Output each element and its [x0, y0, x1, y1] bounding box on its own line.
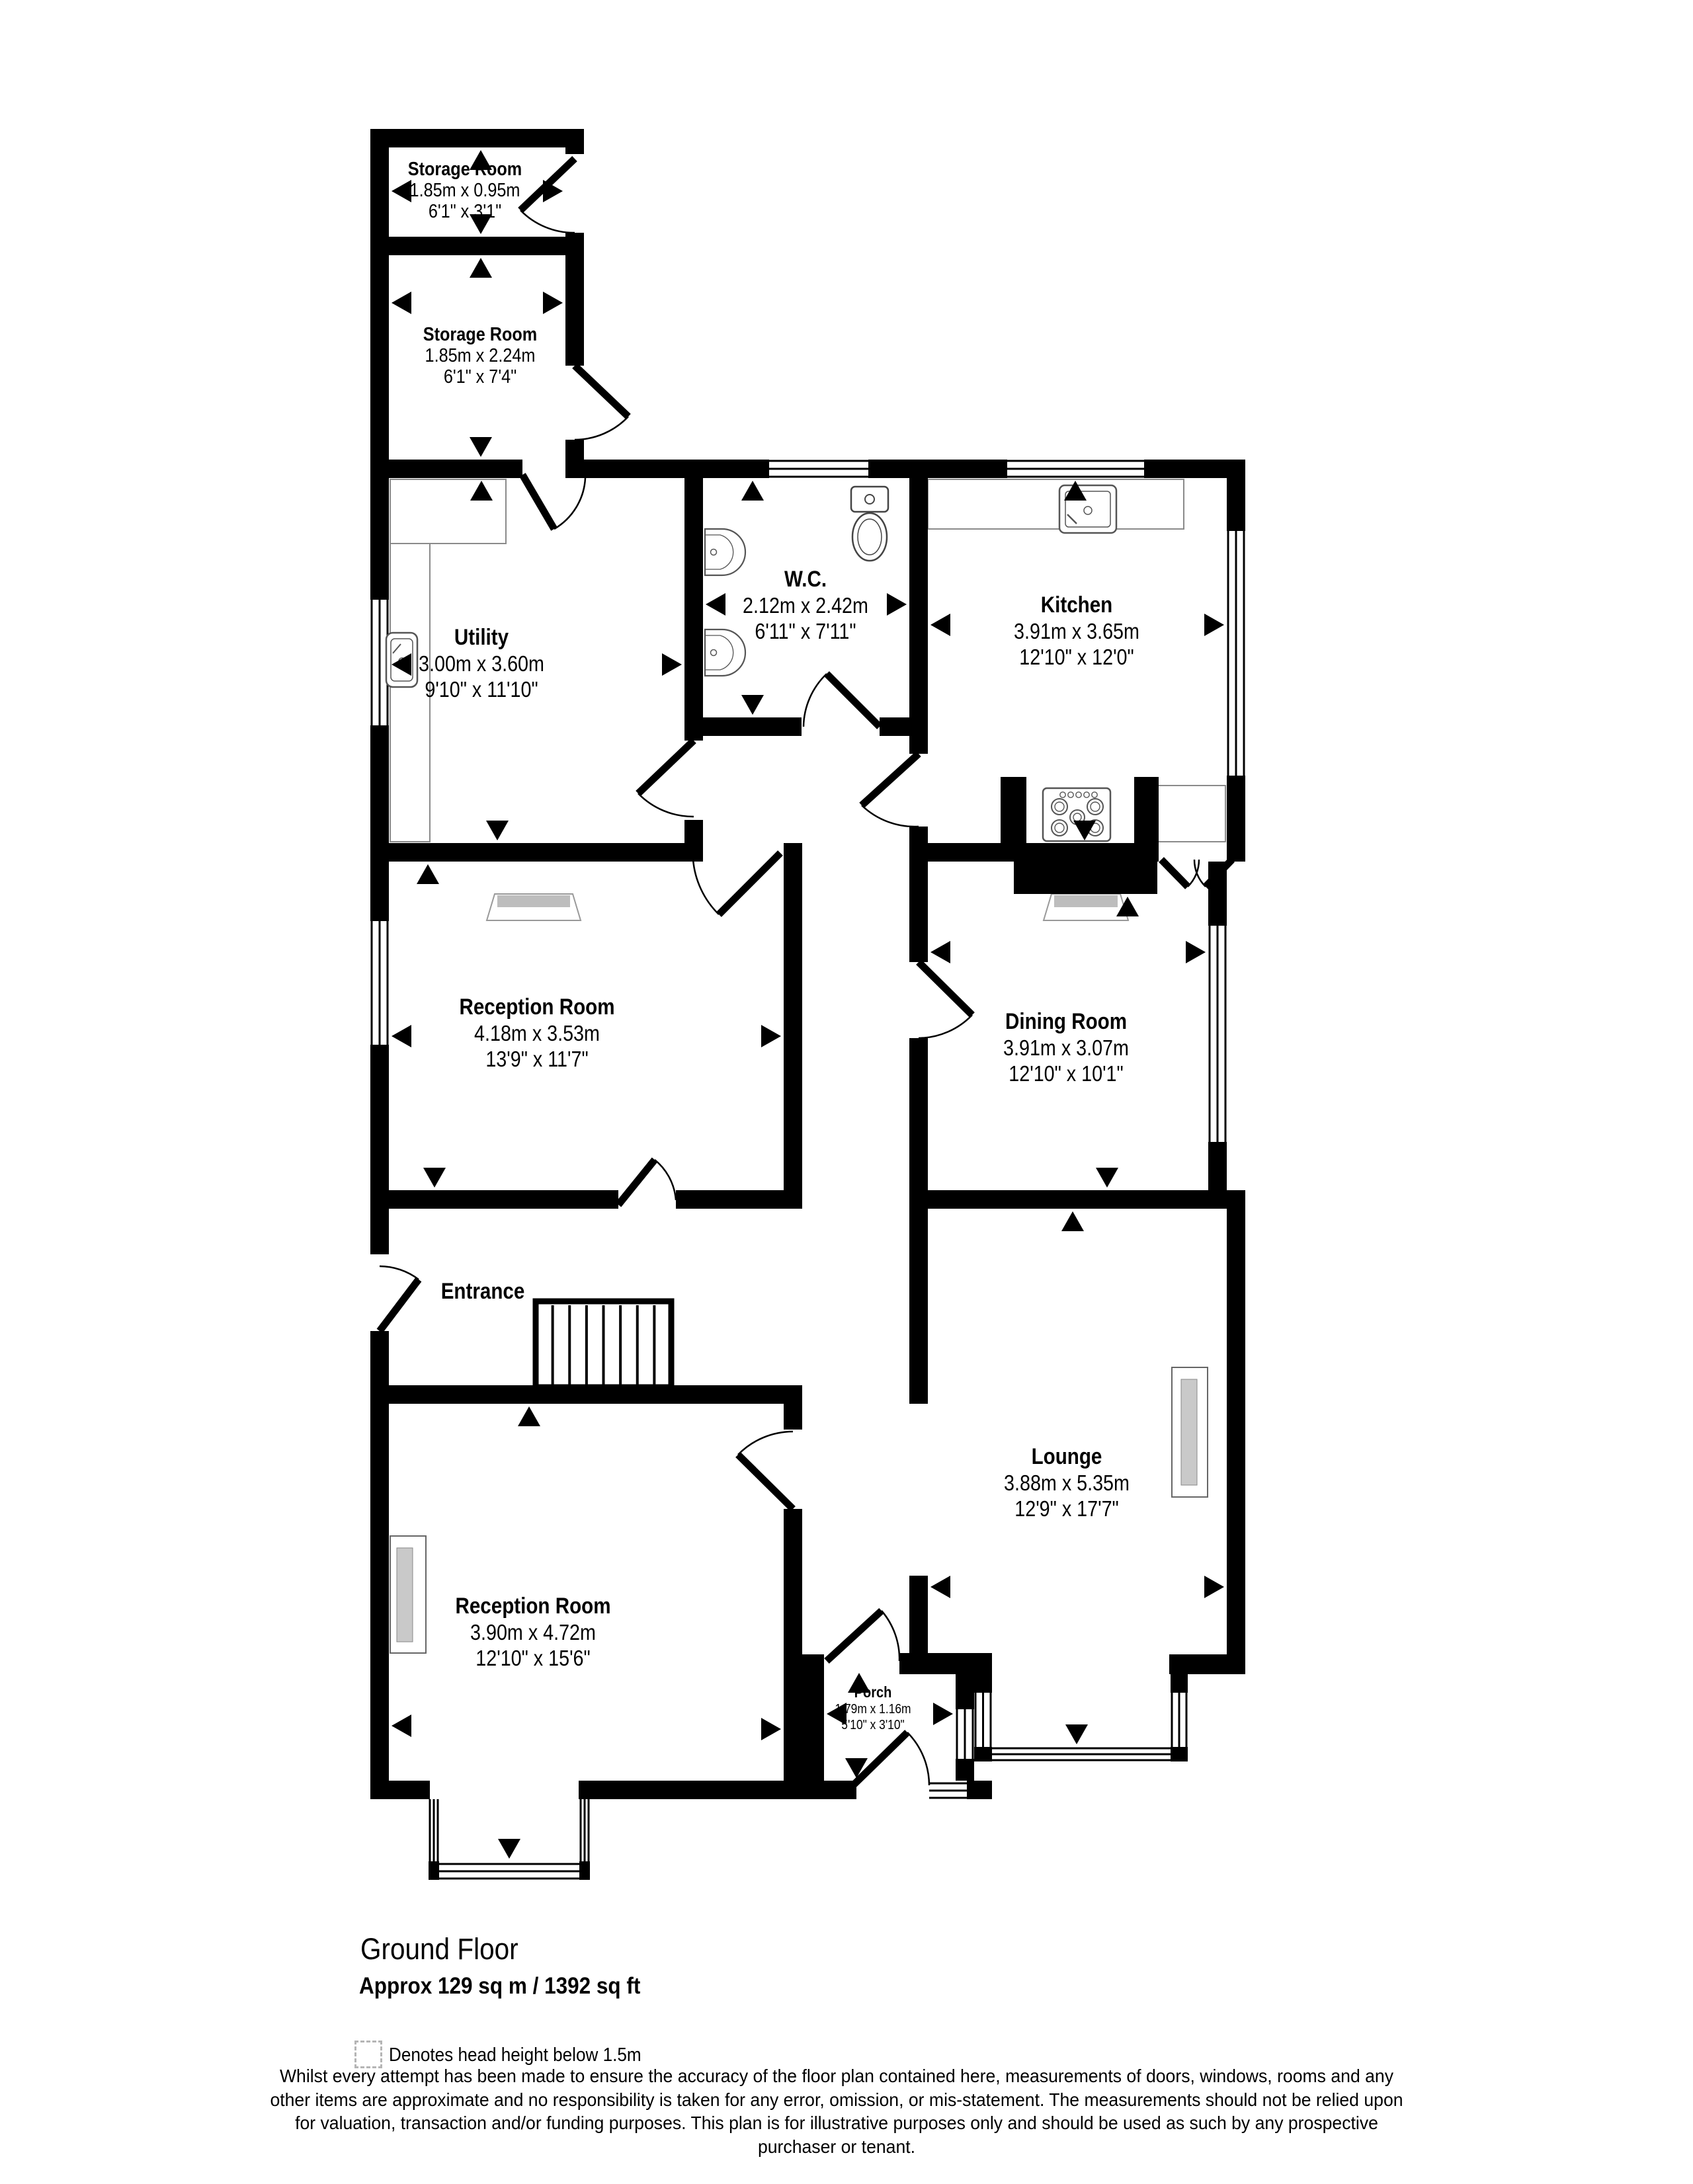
wc-sink-icon [705, 529, 745, 575]
room-name: Kitchen [1014, 592, 1139, 618]
door-icon [827, 1611, 899, 1661]
room-name: Lounge [1004, 1444, 1130, 1470]
direction-arrow-icon [498, 1839, 520, 1859]
room-label-lounge: Lounge 3.88m x 5.35m 12'9" x 17'7" [1004, 1444, 1130, 1521]
room-dims-metric: 3.90m x 4.72m [455, 1619, 610, 1645]
direction-arrow-icon [423, 1168, 446, 1188]
door-icon [804, 674, 880, 727]
room-dims-metric: 1.79m x 1.16m [835, 1701, 911, 1717]
room-name: Utility [419, 625, 544, 651]
room-dims-imperial: 12'9" x 17'7" [1004, 1496, 1130, 1521]
door-icon [638, 741, 694, 817]
floor-area: Approx 129 sq m / 1392 sq ft [359, 1973, 640, 2000]
room-label-dining: Dining Room 3.91m x 3.07m 12'10" x 10'1" [1003, 1009, 1129, 1086]
staircase [536, 1301, 671, 1387]
room-label-storage-1: Storage Room 1.85m x 0.95m 6'1" x 3'1" [408, 159, 522, 222]
room-dims-imperial: 6'11" x 7'11" [743, 618, 868, 644]
direction-arrow-icon [930, 1576, 950, 1598]
room-label-entrance: Entrance [441, 1279, 525, 1305]
room-dims-metric: 3.91m x 3.07m [1003, 1035, 1129, 1061]
direction-arrow-icon [1096, 1168, 1118, 1188]
room-dims-metric: 3.00m x 3.60m [419, 651, 544, 676]
disclaimer-text: Whilst every attempt has been made to en… [262, 2064, 1412, 2158]
floor-plan-drawing [0, 0, 1693, 2184]
direction-arrow-icon [706, 593, 725, 616]
room-dims-metric: 3.88m x 5.35m [1004, 1470, 1130, 1496]
wc-sink-icon [705, 629, 745, 676]
room-label-porch: Porch 1.79m x 1.16m 5'10" x 3'10" [835, 1683, 911, 1733]
direction-arrow-icon [392, 1715, 411, 1737]
floor-title: Ground Floor [360, 1932, 518, 1966]
floor-plan-page: Storage Room 1.85m x 0.95m 6'1" x 3'1" S… [0, 0, 1693, 2184]
room-dims-imperial: 12'10" x 15'6" [455, 1645, 610, 1671]
door-icon [693, 853, 780, 914]
room-dims-imperial: 12'10" x 12'0" [1014, 644, 1139, 670]
direction-arrow-icon [392, 1025, 411, 1047]
room-dims-metric: 1.85m x 2.24m [423, 345, 537, 366]
door-icon [738, 1432, 793, 1509]
direction-arrow-icon [1186, 941, 1206, 963]
fireplace-hearths [487, 894, 1128, 920]
room-label-utility: Utility 3.00m x 3.60m 9'10" x 11'10" [419, 625, 544, 702]
room-name: Storage Room [408, 159, 522, 180]
room-label-reception-1: Reception Room 4.18m x 3.53m 13'9" x 11'… [459, 994, 614, 1072]
direction-arrow-icon [518, 1406, 540, 1426]
kitchen-sink-icon [1059, 485, 1116, 533]
direction-arrow-icon [662, 653, 682, 676]
direction-arrow-icon [761, 1025, 781, 1047]
room-label-reception-2: Reception Room 3.90m x 4.72m 12'10" x 15… [455, 1594, 610, 1671]
direction-arrow-icon [741, 481, 764, 501]
room-dims-metric: 2.12m x 2.42m [743, 592, 868, 618]
room-name: Reception Room [455, 1594, 610, 1619]
room-name: W.C. [743, 567, 868, 592]
door-icon [919, 962, 972, 1038]
direction-arrow-icon [543, 292, 563, 314]
direction-arrow-icon [470, 437, 492, 457]
direction-arrow-icon [392, 292, 411, 314]
room-name: Reception Room [459, 994, 614, 1020]
door-icon [1161, 860, 1199, 887]
room-label-storage-2: Storage Room 1.85m x 2.24m 6'1" x 7'4" [423, 324, 537, 387]
direction-arrow-icon [1061, 1211, 1084, 1231]
door-icon [522, 475, 585, 529]
direction-arrow-icon [887, 593, 907, 616]
door-icon [380, 1266, 419, 1331]
room-dims-imperial: 5'10" x 3'10" [835, 1717, 911, 1733]
room-dims-metric: 3.91m x 3.65m [1014, 618, 1139, 644]
door-icon [618, 1160, 676, 1205]
direction-arrow-icon [470, 258, 492, 278]
door-icon [862, 754, 919, 827]
toilet-icon [851, 487, 888, 561]
direction-arrow-icon [930, 614, 950, 636]
room-label-wc: W.C. 2.12m x 2.42m 6'11" x 7'11" [743, 567, 868, 644]
direction-arrow-icon [1065, 1724, 1088, 1744]
head-height-legend-text: Denotes head height below 1.5m [389, 2044, 641, 2066]
direction-arrow-icon [741, 695, 764, 715]
room-dims-imperial: 9'10" x 11'10" [419, 676, 544, 702]
room-dims-imperial: 6'1" x 7'4" [423, 366, 537, 387]
room-name: Porch [835, 1683, 911, 1701]
direction-arrow-icon [761, 1718, 781, 1740]
room-dims-metric: 4.18m x 3.53m [459, 1020, 614, 1046]
door-icon [575, 366, 628, 440]
room-dims-imperial: 6'1" x 3'1" [408, 201, 522, 222]
direction-arrow-icon [1204, 614, 1224, 636]
direction-arrow-icon [930, 941, 950, 963]
room-dims-imperial: 13'9" x 11'7" [459, 1046, 614, 1072]
direction-arrow-icon [1204, 1576, 1224, 1598]
room-dims-imperial: 12'10" x 10'1" [1003, 1061, 1129, 1086]
room-name: Storage Room [423, 324, 537, 345]
room-name: Dining Room [1003, 1009, 1129, 1035]
room-name: Entrance [441, 1279, 525, 1305]
direction-arrow-icon [933, 1703, 953, 1725]
hob-icon [1043, 788, 1110, 841]
room-label-kitchen: Kitchen 3.91m x 3.65m 12'10" x 12'0" [1014, 592, 1139, 670]
direction-arrow-icon [417, 864, 439, 884]
direction-arrow-icon [486, 821, 509, 840]
room-dims-metric: 1.85m x 0.95m [408, 180, 522, 201]
doors [380, 159, 1232, 1785]
